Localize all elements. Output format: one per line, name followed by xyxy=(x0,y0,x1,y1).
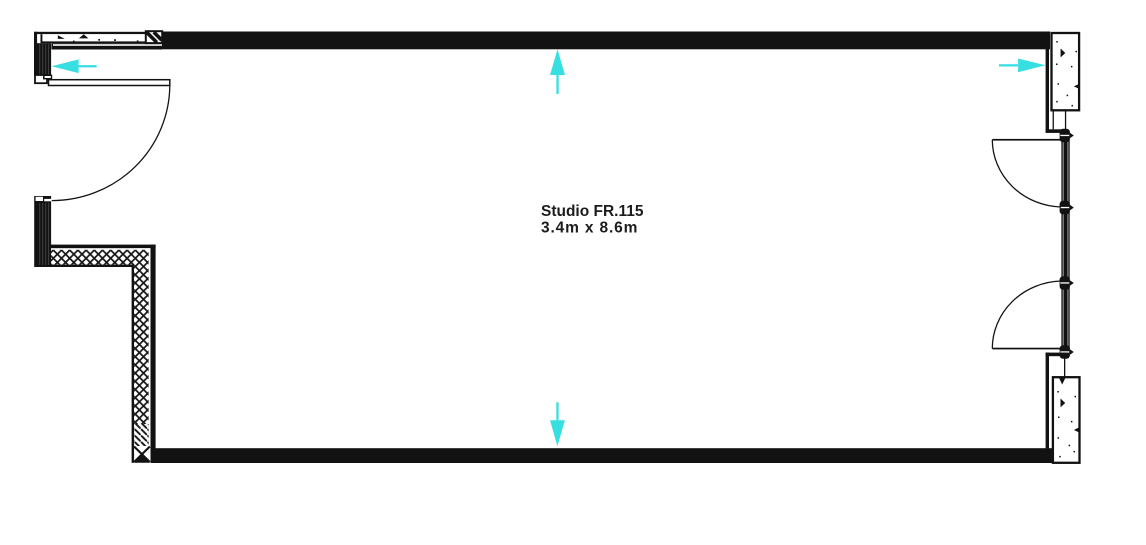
svg-text:Studio FR.115: Studio FR.115 xyxy=(541,203,644,220)
svg-text:3.4m x 8.6m: 3.4m x 8.6m xyxy=(541,220,638,237)
